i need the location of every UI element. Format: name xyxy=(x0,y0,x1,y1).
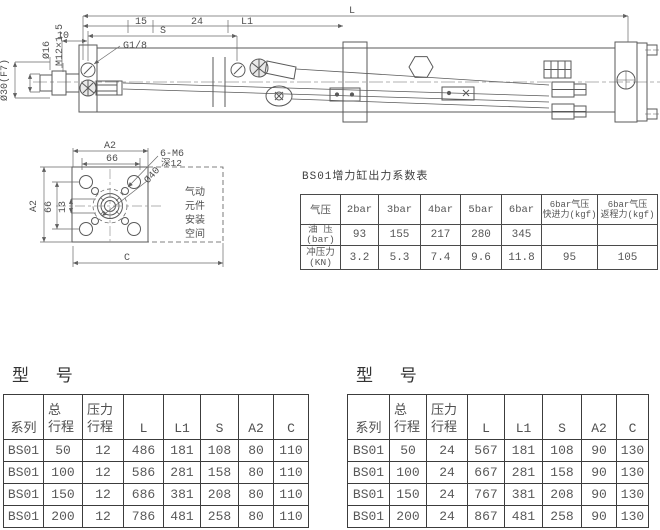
cell: BS01 xyxy=(4,506,44,528)
force-col-2bar: 2bar xyxy=(341,195,379,225)
model-row: BS01 100 24 667 281 158 90 130 xyxy=(348,462,649,484)
cell: 281 xyxy=(164,462,201,484)
model-table-title: 型 号 xyxy=(12,361,309,386)
model-col-A2: A2 xyxy=(239,395,274,440)
front-knurled-knob xyxy=(80,80,96,96)
cell: 150 xyxy=(44,484,83,506)
force-table: 气压 2bar 3bar 4bar 5bar 6bar 6bar气压 快进力(k… xyxy=(300,194,658,270)
model-col-pressure-stroke: 压力 行程 xyxy=(427,395,468,440)
dim-L: L xyxy=(349,6,355,17)
cell: 5.3 xyxy=(379,246,421,270)
force-col-return-line1: 6bar气压 xyxy=(598,200,657,210)
model-table-left: 系列 总 行程 压力 行程 L L1 S A2 C BS01 50 12 4 xyxy=(3,394,309,528)
model-row: BS01 50 24 567 181 108 90 130 xyxy=(348,440,649,462)
cell: 24 xyxy=(427,506,468,528)
cell: 667 xyxy=(468,462,505,484)
rod-thread-stub xyxy=(40,75,52,91)
cell: 12 xyxy=(83,506,124,528)
hex-nut xyxy=(409,57,433,78)
corner-hole xyxy=(80,223,93,236)
cell: 150 xyxy=(390,484,427,506)
row-label: 冲压力 (KN) xyxy=(301,246,341,270)
cell: 12 xyxy=(83,484,124,506)
cell: 24 xyxy=(427,462,468,484)
row-label-line2: (bar) xyxy=(301,235,340,245)
model-col-C: C xyxy=(274,395,309,440)
model-col-total-stroke: 总 行程 xyxy=(390,395,427,440)
cell: 11.8 xyxy=(502,246,542,270)
model-col-pressure-stroke: 压力 行程 xyxy=(83,395,124,440)
cell: 80 xyxy=(239,506,274,528)
mid-port-mark xyxy=(234,66,242,74)
dim-S: S xyxy=(160,26,166,37)
model-col-C: C xyxy=(617,395,649,440)
cell: 786 xyxy=(124,506,164,528)
space-note-line: 空间 xyxy=(185,227,205,241)
cell xyxy=(598,225,658,246)
cell: 767 xyxy=(468,484,505,506)
header-line: 行程 xyxy=(44,419,82,436)
cell: 155 xyxy=(379,225,421,246)
side-view-dim-labels: L L1 S 15 24 10 G1/8 Ø30(F7) Ø16 M12×1.5 xyxy=(0,6,355,101)
cell: 130 xyxy=(617,484,649,506)
tapped-hole xyxy=(122,188,129,195)
model-col-series: 系列 xyxy=(4,395,44,440)
cell: 567 xyxy=(468,440,505,462)
cell: 108 xyxy=(201,440,239,462)
cell: 110 xyxy=(274,462,309,484)
cell: 200 xyxy=(390,506,427,528)
model-col-S: S xyxy=(201,395,239,440)
cell: 486 xyxy=(124,440,164,462)
mid-knurled-knob xyxy=(250,59,268,77)
model-table-title: 型 号 xyxy=(356,361,649,386)
space-note-line: 安装 xyxy=(185,213,205,227)
row-label-line1: 冲压力 xyxy=(301,248,340,258)
force-header-row: 气压 2bar 3bar 4bar 5bar 6bar 6bar气压 快进力(k… xyxy=(301,195,658,225)
cell: 158 xyxy=(543,462,582,484)
cell: 24 xyxy=(427,484,468,506)
dia16-label: Ø16 xyxy=(41,41,53,59)
cell xyxy=(542,225,598,246)
model-col-L: L xyxy=(124,395,164,440)
header-line: 行程 xyxy=(390,419,426,436)
force-coefficient-section: BS01增力缸出力系数表 气压 2bar 3bar 4bar 5bar 6bar… xyxy=(300,167,658,270)
cell: 181 xyxy=(505,440,543,462)
cell: 200 xyxy=(44,506,83,528)
cell: 80 xyxy=(239,440,274,462)
side-view-dimensions xyxy=(15,16,628,98)
space-note-line: 元件 xyxy=(185,200,205,213)
force-col-5bar: 5bar xyxy=(461,195,502,225)
dim-C: C xyxy=(124,253,130,264)
rear-fitting-lower xyxy=(552,104,586,119)
row-label-line2: (KN) xyxy=(301,258,340,268)
oil-pressure-row: 油 压 (bar) 93 155 217 280 345 xyxy=(301,225,658,246)
cell: 24 xyxy=(427,440,468,462)
model-section-stroke12: 型 号 系列 总 行程 压力 行程 L L1 S A2 C xyxy=(3,361,309,528)
press-force-row: 冲压力 (KN) 3.2 5.3 7.4 9.6 11.8 95 105 xyxy=(301,246,658,270)
dim-66-top: 66 xyxy=(106,154,118,165)
cell: 481 xyxy=(164,506,201,528)
corner-hole xyxy=(80,176,93,189)
model-section-stroke24: 型 号 系列 总 行程 压力 行程 L L1 S A2 C xyxy=(347,361,649,528)
model-row: BS01 150 24 767 381 208 90 130 xyxy=(348,484,649,506)
cell: 867 xyxy=(468,506,505,528)
model-row: BS01 150 12 686 381 208 80 110 xyxy=(4,484,309,506)
cell: 50 xyxy=(44,440,83,462)
force-table-title: BS01增力缸出力系数表 xyxy=(300,167,658,183)
rod-spacer xyxy=(66,74,79,92)
port-thread-label: G1/8 xyxy=(123,40,147,52)
hole-depth-label: 深12 xyxy=(161,158,182,169)
cell: 9.6 xyxy=(461,246,502,270)
model-row: BS01 200 24 867 481 258 90 130 xyxy=(348,506,649,528)
cell: 345 xyxy=(502,225,542,246)
model-header-row: 系列 总 行程 压力 行程 L L1 S A2 C xyxy=(348,395,649,440)
cell: 90 xyxy=(582,506,617,528)
tapped-hole xyxy=(122,218,129,225)
tapped-hole xyxy=(92,218,99,225)
cell: 217 xyxy=(421,225,461,246)
cell: 258 xyxy=(201,506,239,528)
cell: BS01 xyxy=(4,440,44,462)
force-col-air: 气压 xyxy=(301,195,341,225)
force-col-return: 6bar气压 返程力(kgf) xyxy=(598,195,658,225)
cell: 381 xyxy=(164,484,201,506)
rear-cap-port xyxy=(617,71,635,89)
cell: 110 xyxy=(274,506,309,528)
header-line: 压力 xyxy=(427,402,467,419)
header-line: 总 xyxy=(390,402,426,419)
cell: 686 xyxy=(124,484,164,506)
force-col-return-line2: 返程力(kgf) xyxy=(598,210,657,220)
cell: 90 xyxy=(582,484,617,506)
dim-15: 15 xyxy=(135,17,147,28)
front-view-dim-labels: A2 66 6-M6 深12 Ø40 A2 66 13 C 气动 元件 安装 空… xyxy=(29,141,205,264)
thread-label: M12×1.5 xyxy=(55,24,66,66)
cell: 12 xyxy=(83,440,124,462)
cell: 481 xyxy=(505,506,543,528)
cell: BS01 xyxy=(348,440,390,462)
cell: 93 xyxy=(341,225,379,246)
cell: 50 xyxy=(390,440,427,462)
cell: 100 xyxy=(390,462,427,484)
cell: 381 xyxy=(505,484,543,506)
cell: 130 xyxy=(617,462,649,484)
space-note-line: 气动 xyxy=(185,185,205,199)
cell: 281 xyxy=(505,462,543,484)
dia40-label: Ø40 xyxy=(142,165,163,186)
rod-nut xyxy=(52,71,66,95)
dim-L1: L1 xyxy=(241,17,253,28)
cell: 108 xyxy=(543,440,582,462)
cell: BS01 xyxy=(348,484,390,506)
cell: 110 xyxy=(274,440,309,462)
dim-A2-left: A2 xyxy=(29,200,40,212)
cell: 3.2 xyxy=(341,246,379,270)
side-view xyxy=(33,42,660,122)
cell: 130 xyxy=(617,440,649,462)
cell: 586 xyxy=(124,462,164,484)
cell: 208 xyxy=(201,484,239,506)
header-line: 行程 xyxy=(83,419,123,436)
rear-fitting-upper xyxy=(552,82,586,97)
cell: 90 xyxy=(582,440,617,462)
pneumatic-space-note: 气动 元件 安装 空间 xyxy=(185,185,205,241)
cell: 208 xyxy=(543,484,582,506)
cell: 12 xyxy=(83,462,124,484)
cylinder-body xyxy=(97,48,615,112)
model-row: BS01 50 12 486 181 108 80 110 xyxy=(4,440,309,462)
force-col-fast: 6bar气压 快进力(kgf) xyxy=(542,195,598,225)
cell: 80 xyxy=(239,462,274,484)
cell: 181 xyxy=(164,440,201,462)
model-row: BS01 200 12 786 481 258 80 110 xyxy=(4,506,309,528)
rod-diameter-label: Ø30(F7) xyxy=(0,59,11,101)
tapped-hole xyxy=(92,188,99,195)
model-col-A2: A2 xyxy=(582,395,617,440)
model-col-L: L xyxy=(468,395,505,440)
cell: BS01 xyxy=(4,462,44,484)
header-line: 总 xyxy=(44,402,82,419)
knob-cylinder-lines xyxy=(96,81,117,95)
model-col-total-stroke: 总 行程 xyxy=(44,395,83,440)
datasheet-page: L L1 S 15 24 10 G1/8 Ø30(F7) Ø16 M12×1.5 xyxy=(0,0,660,530)
model-table-right: 系列 总 行程 压力 行程 L L1 S A2 C BS01 50 24 5 xyxy=(347,394,649,528)
cell: BS01 xyxy=(4,484,44,506)
model-col-S: S xyxy=(543,395,582,440)
dim-66-left: 66 xyxy=(44,201,55,213)
knob-cylinder xyxy=(96,81,122,95)
corner-hole xyxy=(128,223,141,236)
model-header-row: 系列 总 行程 压力 行程 L L1 S A2 C xyxy=(4,395,309,440)
angled-fitting xyxy=(265,61,296,79)
model-col-series: 系列 xyxy=(348,395,390,440)
cell: 110 xyxy=(274,484,309,506)
cell: 90 xyxy=(582,462,617,484)
speed-controller xyxy=(544,61,571,78)
cell: 158 xyxy=(201,462,239,484)
force-col-4bar: 4bar xyxy=(421,195,461,225)
model-col-L1: L1 xyxy=(164,395,201,440)
force-col-3bar: 3bar xyxy=(379,195,421,225)
cell: BS01 xyxy=(348,462,390,484)
dim-24: 24 xyxy=(191,17,203,28)
cell: 130 xyxy=(617,506,649,528)
force-col-fast-line2: 快进力(kgf) xyxy=(542,210,597,220)
cell: 80 xyxy=(239,484,274,506)
cell: 258 xyxy=(543,506,582,528)
force-col-6bar: 6bar xyxy=(502,195,542,225)
cell: BS01 xyxy=(348,506,390,528)
row-label: 油 压 (bar) xyxy=(301,225,341,246)
header-line: 行程 xyxy=(427,419,467,436)
model-col-L1: L1 xyxy=(505,395,543,440)
corner-hole xyxy=(128,176,141,189)
dim-A2-top: A2 xyxy=(104,141,116,152)
model-row: BS01 100 12 586 281 158 80 110 xyxy=(4,462,309,484)
front-port-mark xyxy=(84,66,92,74)
header-line: 压力 xyxy=(83,402,123,419)
cell: 100 xyxy=(44,462,83,484)
cell: 7.4 xyxy=(421,246,461,270)
oval-flange xyxy=(266,86,292,106)
cell: 280 xyxy=(461,225,502,246)
dim-13: 13 xyxy=(58,201,69,213)
force-col-fast-line1: 6bar气压 xyxy=(542,200,597,210)
cell: 95 xyxy=(542,246,598,270)
cell: 105 xyxy=(598,246,658,270)
